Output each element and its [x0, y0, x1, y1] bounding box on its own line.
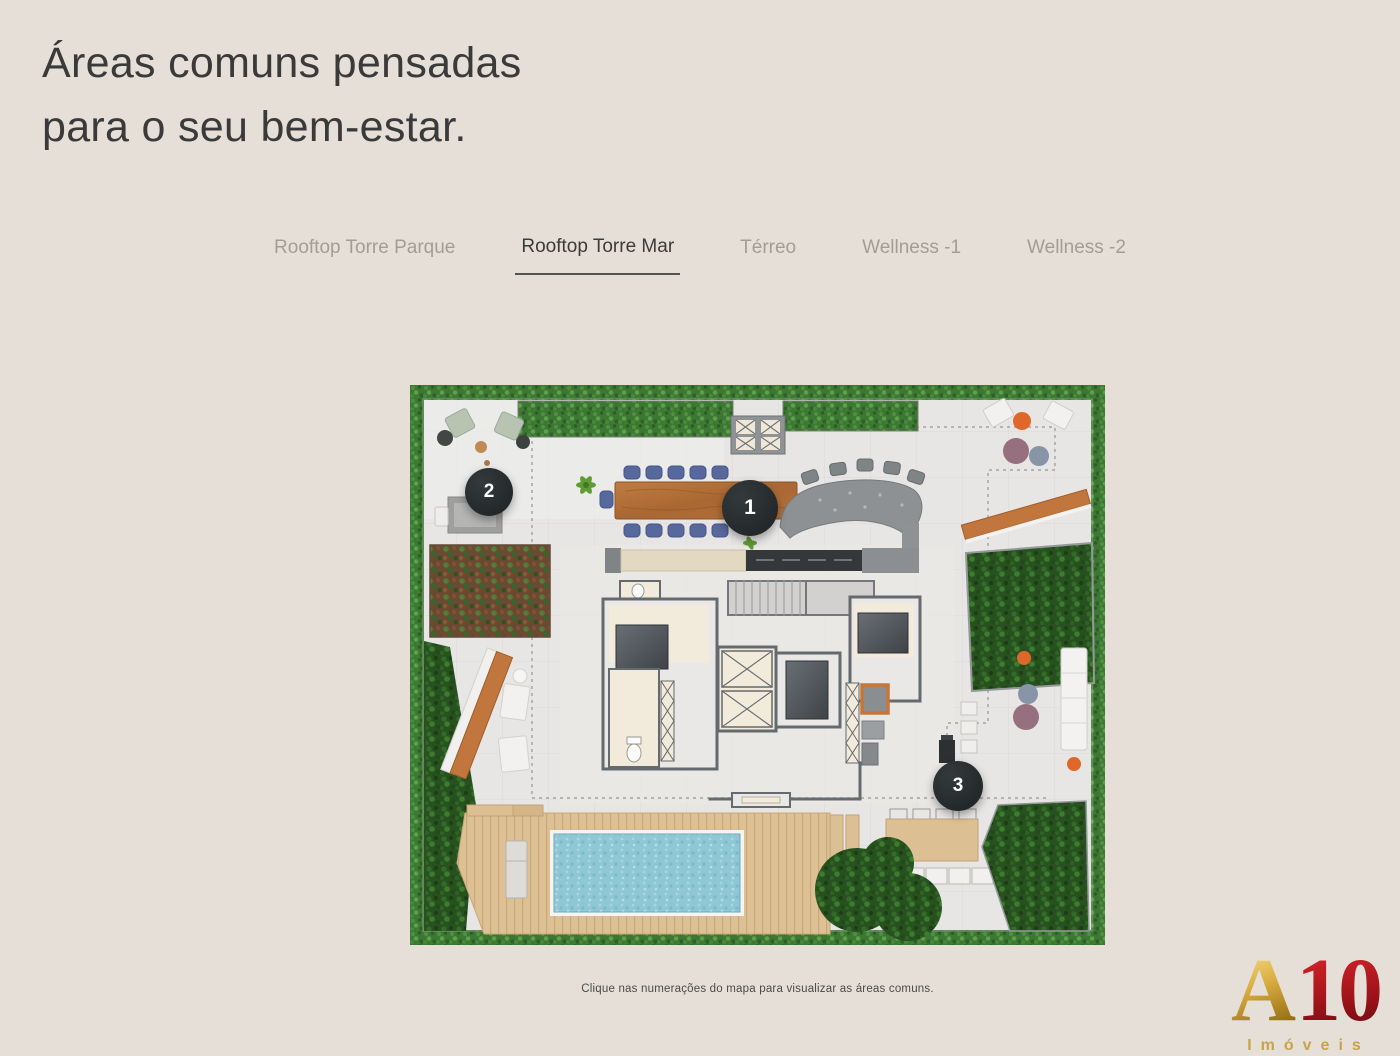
- elevator-shaft: [718, 647, 776, 731]
- map-marker-3[interactable]: 3: [933, 761, 983, 811]
- a10-logo-mark: A10: [1231, 946, 1380, 1036]
- tv-screen: [616, 625, 668, 669]
- floor-plan: 1 2 3: [410, 385, 1105, 945]
- swimming-pool: [550, 830, 744, 916]
- tab-rooftop-torre-parque[interactable]: Rooftop Torre Parque: [268, 235, 461, 275]
- community-garden: [430, 545, 550, 637]
- logo-letter-a: A: [1231, 946, 1296, 1036]
- tv-screen: [858, 613, 908, 653]
- elevator-cab: [786, 661, 828, 719]
- tab-wellness-2[interactable]: Wellness -2: [1021, 235, 1132, 275]
- pool-lounger: [506, 841, 527, 898]
- tab-rooftop-torre-mar[interactable]: Rooftop Torre Mar: [515, 235, 680, 275]
- tab-terreo[interactable]: Térreo: [734, 235, 802, 275]
- page-title-line2: para o seu bem-estar.: [42, 95, 522, 159]
- page-title-line1: Áreas comuns pensadas: [42, 31, 522, 95]
- map-marker-1[interactable]: 1: [722, 480, 778, 536]
- floor-tabs: Rooftop Torre Parque Rooftop Torre Mar T…: [0, 235, 1400, 275]
- side-table-orange: [1017, 651, 1031, 665]
- logo-subtitle: Imóveis: [1231, 1038, 1380, 1054]
- map-caption: Clique nas numerações do mapa para visua…: [410, 983, 1105, 995]
- page-title: Áreas comuns pensadas para o seu bem-est…: [42, 31, 522, 159]
- pergola: [731, 416, 785, 454]
- a10-logo: A10 Imóveis: [1231, 946, 1380, 1054]
- map-marker-2[interactable]: 2: [465, 468, 513, 516]
- tab-wellness-1[interactable]: Wellness -1: [856, 235, 967, 275]
- floor-plan-image: [410, 385, 1105, 945]
- logo-number-10: 10: [1296, 946, 1380, 1036]
